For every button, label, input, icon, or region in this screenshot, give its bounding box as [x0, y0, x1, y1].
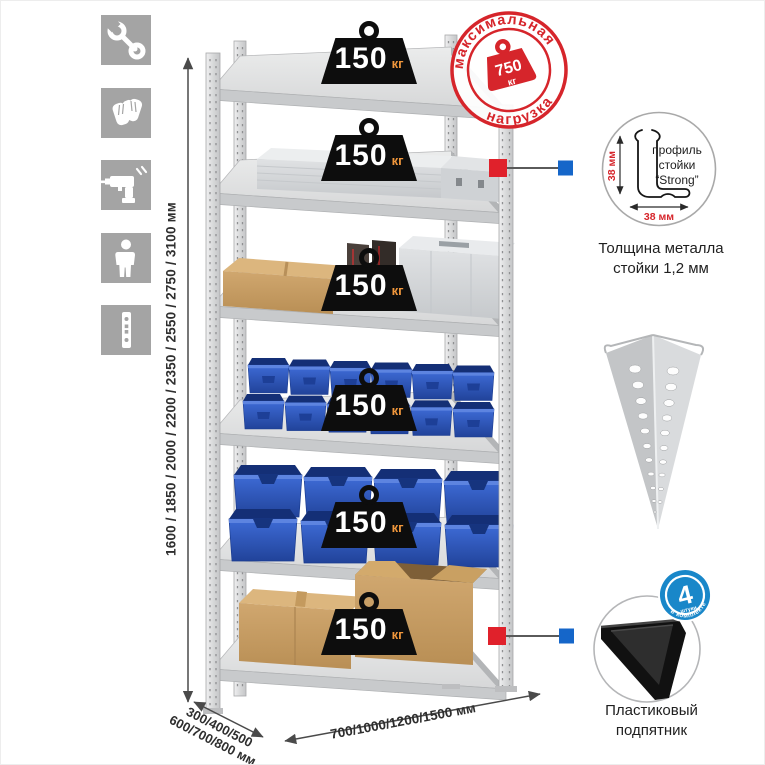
height-dimension-label: 1600 / 1850 / 2000 / 2200 / 2350 / 2550 …	[164, 202, 179, 556]
callout-post-profile	[489, 159, 573, 177]
weight-body: 150 кг	[321, 265, 417, 311]
weight-ring	[359, 485, 379, 505]
callout-blue-marker	[559, 629, 574, 644]
weight-body: 150 кг	[321, 609, 417, 655]
profile-label-line1: профиль	[652, 143, 702, 157]
weight-body: 150 кг	[321, 38, 417, 84]
max-load-stamp: максимальная нагрузка 750 кг	[449, 10, 569, 130]
height-dimension-text: 1600 / 1850 / 2000 / 2200 / 2350 / 2550 …	[164, 202, 179, 556]
weight-body: 150 кг	[321, 385, 417, 431]
load-value: 150	[335, 391, 388, 421]
weight-body: 150 кг	[321, 502, 417, 548]
callout-red-marker	[489, 159, 507, 177]
foot-caption-line1: Пластиковый	[569, 701, 734, 721]
load-unit: кг	[392, 627, 404, 642]
foot-caption-line2: подпятник	[569, 721, 734, 741]
shelf-load-badge-1: 150 кг	[321, 21, 417, 84]
weight-ring	[359, 248, 379, 268]
callout-blue-marker	[558, 161, 573, 176]
weight-ring	[359, 368, 379, 388]
callout-red-marker	[488, 627, 506, 645]
load-unit: кг	[392, 520, 404, 535]
shelf-load-badge-5: 150 кг	[321, 485, 417, 548]
shelf-load-badge-3: 150 кг	[321, 248, 417, 311]
profile-dim-horizontal: 38 мм	[644, 211, 674, 223]
shelf-load-badge-4: 150 кг	[321, 368, 417, 431]
callout-foot	[488, 627, 574, 645]
load-value: 150	[335, 615, 388, 645]
profile-caption: Толщина металла стойки 1,2 мм	[566, 239, 756, 278]
profile-caption-line2: стойки 1,2 мм	[566, 259, 756, 279]
load-unit: кг	[392, 283, 404, 298]
foot-caption: Пластиковый подпятник	[569, 701, 734, 740]
profile-dim-vertical: 38 мм	[606, 151, 618, 181]
load-unit: кг	[392, 56, 404, 71]
load-value: 150	[335, 271, 388, 301]
load-unit: кг	[392, 153, 404, 168]
load-unit: кг	[392, 403, 404, 418]
load-value: 150	[335, 141, 388, 171]
shelf-load-badge-2: 150 кг	[321, 118, 417, 181]
profile-caption-line1: Толщина металла	[566, 239, 756, 259]
plastic-foot-detail: 4 штуки в комплекте	[581, 561, 729, 709]
profile-label-line3: “Strong”	[655, 173, 698, 187]
post-profile-detail: 38 мм 38 мм профиль стойки “Strong”	[600, 110, 718, 228]
weight-body: 150 кг	[321, 135, 417, 181]
shelf-load-badge-6: 150 кг	[321, 592, 417, 655]
profile-label-line2: стойки	[659, 158, 696, 172]
shelving-product-infographic: 150 кг 150 кг 150 кг 150 кг 150 кг	[0, 0, 765, 765]
load-value: 150	[335, 508, 388, 538]
load-value: 150	[335, 44, 388, 74]
weight-ring	[359, 592, 379, 612]
corner-post-image	[601, 319, 711, 534]
weight-ring	[359, 118, 379, 138]
weight-ring	[359, 21, 379, 41]
